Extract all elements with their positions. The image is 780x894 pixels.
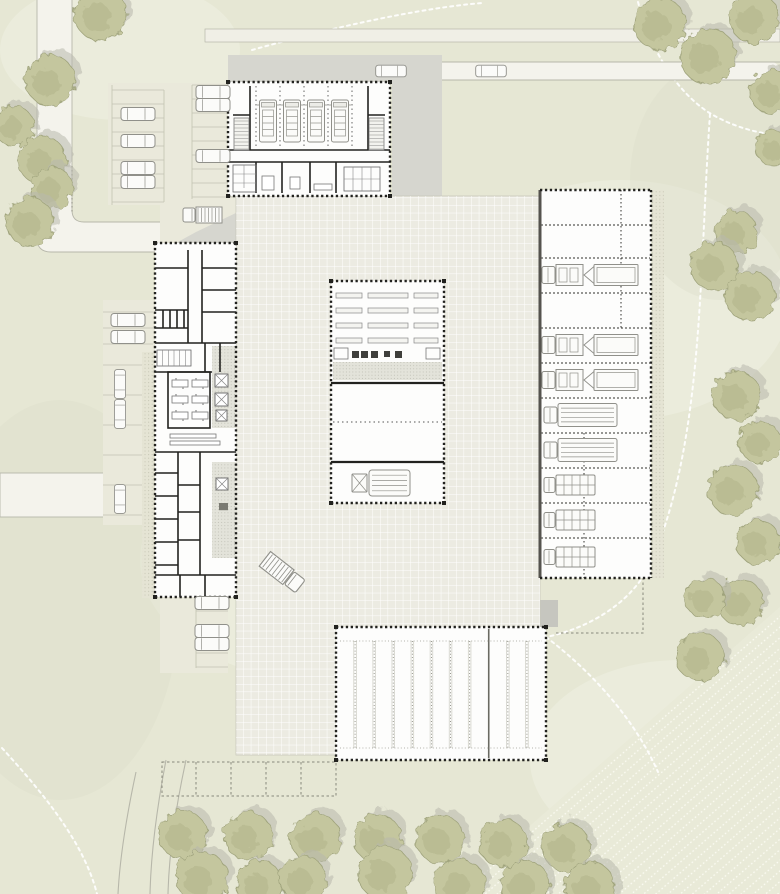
table [192,412,208,419]
wall-corner-post [334,625,338,629]
shelf-rack [414,323,438,328]
road-west-branch [0,473,112,517]
tree-canopy-inner [549,836,575,862]
shelf-rack [368,293,408,298]
plan-canvas [0,0,780,894]
shelf-rack [414,338,438,343]
wall-corner-post [226,80,230,84]
parked-car [121,135,155,148]
machine [371,351,378,358]
tree-canopy-inner [716,479,744,507]
tree-canopy-inner [688,43,719,74]
car-body [114,370,125,399]
wall-corner-post [234,241,238,245]
fire-engine [281,100,303,142]
tractor-cab [542,337,555,354]
parked-car [195,625,229,638]
truck-box [558,404,617,427]
table [192,380,208,387]
tree-canopy-inner [737,7,765,35]
car-body [111,331,145,344]
garage-van [544,475,595,495]
machine [352,351,359,358]
tree-canopy-inner [642,12,671,41]
wall-corner-post [234,595,238,599]
table [172,380,188,387]
tree-canopy-inner [184,866,213,894]
tractor-cab [542,372,555,389]
tree-canopy-inner [13,211,39,237]
wall-corner-post [329,279,333,283]
canopy-floor [336,627,546,760]
tree-canopy-inner [697,255,723,281]
tiled-floor-dots [333,362,442,380]
truck [183,207,222,223]
workshop-truck [352,470,410,496]
truck-cab [544,407,557,423]
garage-van [544,510,595,530]
tree-canopy-inner [423,828,449,854]
tree-canopy-inner [683,646,709,672]
tree-canopy-inner [691,589,713,611]
parked-car [111,331,145,344]
tree-canopy-inner [745,433,768,456]
tree-canopy-inner [287,869,312,894]
garage-boxtruck [544,439,617,462]
garage-boxtruck [544,404,617,427]
tree-canopy-inner [743,532,767,556]
tree-canopy-inner [231,825,257,851]
shelf-rack [336,338,362,343]
van-cab [544,513,555,528]
car-body [195,597,229,610]
truck-box [369,470,410,496]
shelf-rack [336,293,362,298]
tree-canopy-inner [0,117,22,139]
truck-cab [544,442,557,458]
shelf-rack [336,308,362,313]
table [290,177,300,189]
tree-canopy-inner [366,861,396,891]
wall-corner-post [153,241,157,245]
fire-engine [329,100,351,142]
garage-van [544,547,595,567]
shelf-rack [336,323,362,328]
tree-canopy-inner [733,285,761,313]
wall-corner-post [544,758,548,762]
tree-canopy-inner [166,824,192,850]
fire-truck-windshield [262,103,275,108]
canopy-building [334,625,548,762]
paver-dots [142,352,155,598]
car-body [121,162,155,175]
car-body [195,638,229,651]
tree-canopy-inner [298,827,326,855]
parked-car [195,638,229,651]
car-body [114,400,125,429]
tree-canopy-inner [486,832,512,858]
tree-canopy-inner [720,385,746,411]
tractor-bed [556,265,583,286]
parked-car [114,400,125,429]
truck-box [196,207,222,223]
tractor-bed [556,370,583,391]
shelf-rack [368,308,408,313]
truck-cab [183,208,195,222]
shelf-rack [414,308,438,313]
parked-car [376,65,407,77]
car-body [196,86,230,99]
fire-engine [305,100,327,142]
van-cab [544,478,555,493]
table [192,396,208,403]
shelf-rack [414,293,438,298]
office-wing-building [153,241,238,599]
bench [170,441,220,445]
car-body [121,108,155,121]
parked-car [196,150,230,163]
machine [395,351,402,358]
car-body [114,485,125,514]
wall-corner-post [442,501,446,505]
wall-corner-post [388,80,392,84]
table [172,396,188,403]
car-body [476,65,507,77]
fire-truck-windshield [286,103,299,108]
parked-car [196,86,230,99]
truck-box [558,439,617,462]
table [172,412,188,419]
fire-engine [257,100,279,142]
parked-car [121,176,155,189]
parked-car [195,597,229,610]
parked-car [121,108,155,121]
tractor-bed [556,335,583,356]
wall-corner-post [334,758,338,762]
paver-dots [652,190,664,578]
car-body [196,99,230,112]
parked-car [111,314,145,327]
car-body [376,65,407,77]
car-body [196,150,230,163]
bench [170,434,216,438]
tree-canopy-inner [33,69,61,97]
parked-car [196,99,230,112]
wall-corner-post [388,194,392,198]
machine [361,351,368,358]
wall-corner-post [226,194,230,198]
parked-car [476,65,507,77]
car-body [121,135,155,148]
fire-truck-windshield [334,103,347,108]
wall-corner-post [329,501,333,505]
table [314,184,332,190]
parked-car [121,162,155,175]
architectural-site-plan [0,0,780,894]
wall-corner-post [544,625,548,629]
car-body [121,176,155,189]
parked-car [114,485,125,514]
wall-corner-post [153,595,157,599]
car-body [195,625,229,638]
shelf-rack [368,323,408,328]
van-cab [544,550,555,565]
table [262,176,274,190]
parked-car [114,370,125,399]
tree-canopy-inner [82,2,111,31]
car-body [111,314,145,327]
machine [384,351,390,357]
shelf-rack [368,338,408,343]
sink-unit [219,503,228,510]
tree-canopy-inner [757,82,780,106]
fire-truck-windshield [310,103,323,108]
tractor-cab [542,267,555,284]
wall-corner-post [442,279,446,283]
